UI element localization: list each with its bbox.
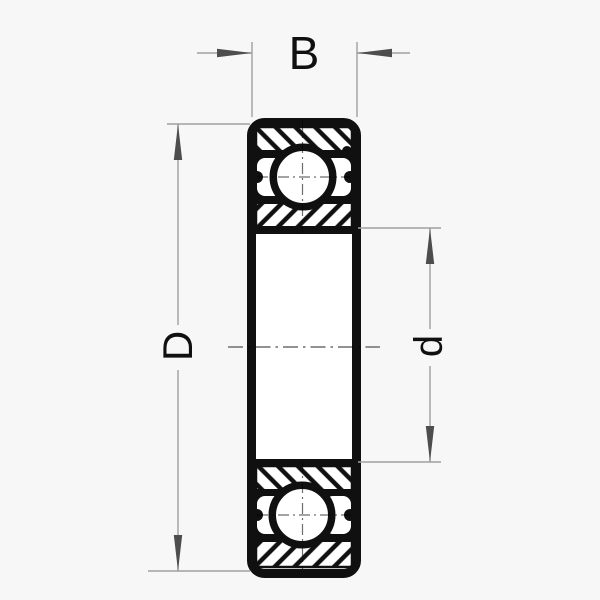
bearing-cross-section-drawing: B D d <box>0 0 600 600</box>
dimension-bore-diameter-label: d <box>407 335 451 357</box>
dimension-b: B <box>197 27 410 117</box>
bore-diameter-arrow-down <box>426 426 434 462</box>
outer-diameter-arrow-down <box>174 535 182 571</box>
dimension-bore-diameter: d <box>358 228 451 462</box>
dimension-b-label: B <box>289 27 320 79</box>
b-arrow-left <box>217 49 252 57</box>
bore-diameter-arrow-up <box>426 228 434 264</box>
outer-diameter-arrow-up <box>174 124 182 160</box>
drawing-canvas: B D d <box>0 0 600 600</box>
dimension-outer-diameter-label: D <box>154 331 201 361</box>
b-arrow-right <box>357 49 392 57</box>
snap-ring-groove-dot <box>342 146 352 156</box>
top-cross-section <box>247 127 361 230</box>
